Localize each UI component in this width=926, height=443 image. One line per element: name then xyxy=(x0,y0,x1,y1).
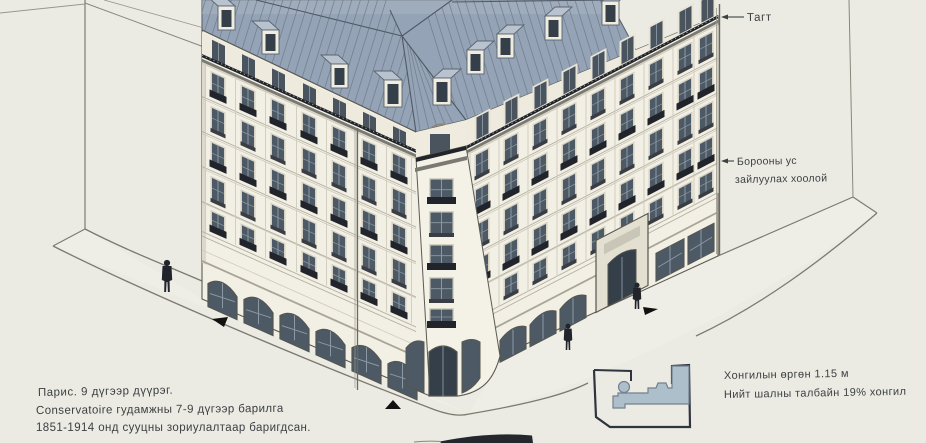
svg-text:Хонгилын өргөн 1.15 м: Хонгилын өргөн 1.15 м xyxy=(724,368,849,382)
svg-text:Тагт: Тагт xyxy=(747,12,772,24)
svg-text:1851-1914 онд сууцны зориулалт: 1851-1914 онд сууцны зориулалтаар баригд… xyxy=(36,422,311,434)
svg-text:Conservatoire гудамжны 7-9 дүг: Conservatoire гудамжны 7-9 дүгээр барилг… xyxy=(36,403,284,417)
svg-text:Борооны ус: Борооны ус xyxy=(737,155,797,168)
svg-text:Парис. 9 дүгээр дүүрэг.: Парис. 9 дүгээр дүүрэг. xyxy=(38,385,173,399)
svg-text:зайлуулах хоолой: зайлуулах хоолой xyxy=(735,172,828,186)
